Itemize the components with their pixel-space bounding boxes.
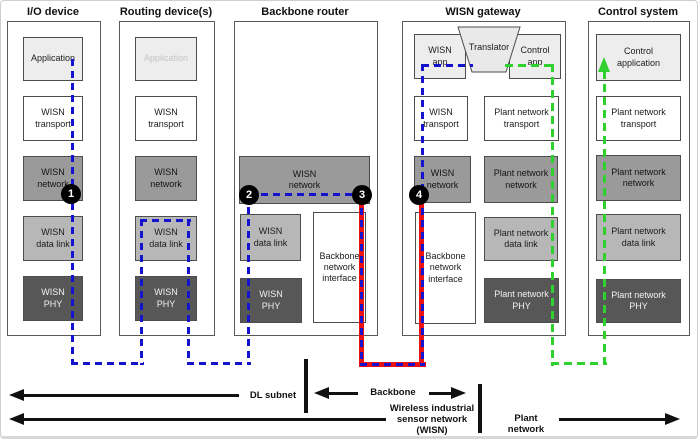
wisn-path-segment [71, 59, 74, 365]
backbone-label: Backbone [357, 387, 429, 398]
plant-path-segment [505, 64, 554, 67]
wisn-path-segment [422, 64, 473, 67]
wisn-path-segment-over-backbone [360, 196, 363, 365]
layer-box-gw-plant-phy: Plant network PHY [484, 278, 559, 323]
wisn-span-arrow-line [23, 418, 386, 421]
plant-path-segment [551, 64, 554, 366]
wisn-path-segment [249, 193, 363, 196]
reference-point-3: 3 [352, 185, 372, 205]
wisn-path-segment [71, 362, 144, 365]
column-title-io-device: I/O device [7, 6, 99, 18]
layer-box-io-wisn-data-link: WISN data link [23, 216, 83, 261]
layer-box-gw-backbone-interface: Backbone network interface [415, 212, 476, 324]
column-title-routing-device: Routing device(s) [119, 6, 213, 18]
reference-point-2: 2 [239, 185, 259, 205]
wisn-path-segment [140, 219, 143, 365]
layer-box-cs-plant-transport: Plant network transport [596, 96, 681, 141]
layer-box-io-wisn-phy: WISN PHY [23, 276, 83, 321]
layer-box-routing-application: Application [135, 37, 197, 81]
plant-path-segment [603, 71, 606, 365]
backbone-arrow-line [429, 392, 452, 395]
dl-subnet-arrow-line [23, 394, 239, 397]
layer-box-gw-plant-transport: Plant network transport [484, 96, 559, 141]
wisn-path-segment [187, 362, 251, 365]
column-title-wisn-gateway: WISN gateway [402, 6, 564, 18]
layer-box-routing-wisn-transport: WISN transport [135, 96, 197, 141]
plant-network-arrowhead-icon [665, 413, 680, 425]
plant-network-label: Plant network [495, 413, 557, 435]
layer-box-routing-wisn-network: WISN network [135, 156, 197, 201]
layer-box-io-application: Application [23, 37, 83, 81]
layer-box-cs-plant-data-link: Plant network data link [596, 214, 681, 261]
layer-box-gw-plant-network: Plant network network [484, 156, 558, 203]
translator-label: Translator [457, 26, 521, 68]
layer-box-cs-plant-phy: Plant network PHY [596, 279, 681, 323]
scope-divider-bar [304, 359, 308, 413]
plant-path-segment [551, 362, 607, 365]
dl-subnet-arrowhead-icon [9, 389, 24, 401]
plant-path-arrowhead-icon [598, 57, 610, 72]
column-title-backbone-router: Backbone router [234, 6, 376, 18]
reference-point-4: 4 [409, 185, 429, 205]
wisn-path-segment [187, 219, 190, 365]
dl-subnet-label: DL subnet [241, 390, 305, 401]
wisn-span-arrowhead-icon [9, 413, 24, 425]
plant-network-arrow-line [559, 418, 667, 421]
backbone-arrowhead-left-icon [314, 387, 329, 399]
column-title-control-system: Control system [588, 6, 688, 18]
backbone-arrowhead-right-icon [451, 387, 466, 399]
layer-box-cs-plant-network: Plant network network [596, 155, 681, 201]
wisn-span-label: Wireless industrial sensor network (WISN… [383, 403, 481, 436]
layer-box-gw-plant-data-link: Plant network data link [484, 217, 558, 261]
layer-box-io-wisn-transport: WISN transport [23, 96, 83, 141]
backbone-arrow-line [329, 392, 358, 395]
protocol-stack-diagram: I/O device Routing device(s) Backbone ro… [0, 0, 698, 439]
wisn-path-segment [140, 219, 191, 222]
wisn-path-segment-over-backbone [360, 363, 425, 366]
reference-point-1: 1 [61, 184, 81, 204]
wisn-path-segment [247, 195, 250, 365]
wisn-path-segment [421, 64, 424, 365]
